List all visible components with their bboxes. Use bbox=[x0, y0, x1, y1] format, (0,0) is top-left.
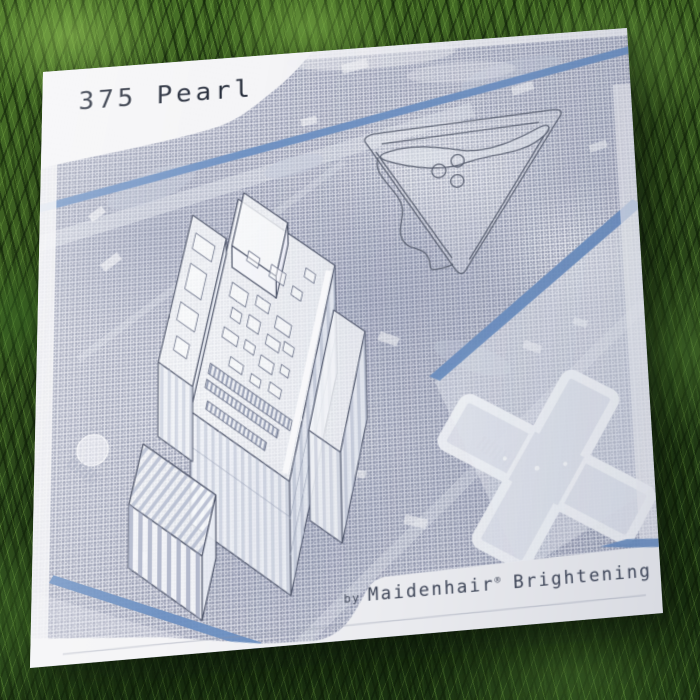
building-drawing bbox=[128, 184, 371, 627]
park-triangle-outline bbox=[364, 109, 569, 281]
grass-background: 375 Pearl byMaidenhair® Brightening bbox=[0, 0, 700, 700]
credit-by: by bbox=[344, 591, 361, 606]
album-cover: 375 Pearl byMaidenhair® Brightening bbox=[30, 28, 663, 668]
